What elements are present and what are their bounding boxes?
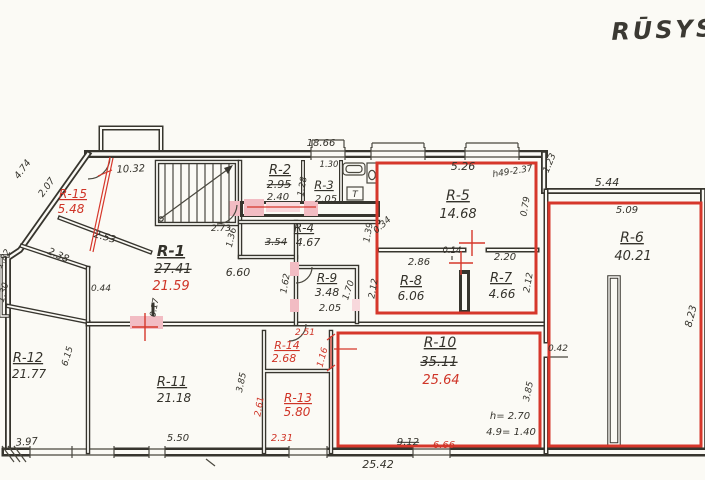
drawing-title: RŪSYS	[611, 12, 705, 46]
dim-2-53: 2.53	[92, 229, 116, 246]
room-r3-area: 2.05	[315, 194, 337, 205]
northeast-step-wall	[544, 154, 703, 191]
room-r2-area-old: 2.95	[267, 178, 292, 191]
dim-top-18-66: 18.66	[307, 138, 336, 149]
note-h-2-70: h= 2.70	[490, 411, 530, 422]
room-r5-name: R-5	[446, 188, 470, 204]
room-r5-area: 14.68	[439, 207, 476, 222]
floor-plan-page: RŪSYS 18.6610.324.742.072.532.381.821.30…	[0, 0, 705, 480]
dim-0-44: 0.44	[91, 284, 111, 294]
room-r4-name: R-4	[294, 221, 314, 235]
stair-direction-line	[160, 167, 231, 219]
dim-6-60: 6.60	[226, 266, 251, 279]
dim-tick	[206, 459, 215, 466]
room-r1-area-new: 21.59	[152, 279, 189, 294]
dim-2-31: 2.31	[271, 433, 293, 444]
dim-8-23: 8.23	[684, 304, 700, 328]
room-r10-name: R-10	[424, 335, 457, 351]
red-dim-marks-r14	[327, 334, 357, 371]
dim-3-85-r11: 3.85	[235, 371, 249, 393]
room-r13-area: 5.80	[284, 405, 311, 419]
dim-2-51: 2.51	[295, 328, 315, 338]
room-r6-name: R-6	[620, 230, 644, 246]
dim-5-09: 5.09	[616, 205, 638, 216]
dim-1-16: 1.16	[316, 346, 331, 368]
room-r10-area-new: 25.64	[422, 373, 459, 388]
room-r6-area: 40.21	[614, 249, 651, 264]
room-r7-area: 4.66	[489, 287, 516, 301]
room-r11-name: R-11	[157, 375, 187, 390]
room-r10-area-old: 35.11	[420, 355, 457, 370]
floor-plan-drawing: RŪSYS 18.6610.324.742.072.532.381.821.30…	[0, 0, 705, 480]
dim-10-32: 10.32	[116, 163, 145, 175]
bathroom-fixtures	[343, 163, 377, 200]
dim-5-44: 5.44	[595, 176, 620, 189]
labels-layer: 18.6610.324.742.072.532.381.821.302.736.…	[0, 138, 700, 471]
room-r14-area: 2.68	[272, 352, 297, 365]
dim-3-97: 3.97	[15, 436, 39, 449]
fixture-t-glyph: T	[352, 190, 359, 200]
dim-0-79: 0.79	[519, 196, 532, 218]
dim-3-54: 3.54	[265, 237, 287, 248]
dim-3-85-r6: 3.85	[522, 380, 536, 402]
room-r11-area: 21.18	[157, 391, 192, 405]
room-r8-name: R-8	[400, 274, 422, 289]
north-windows	[311, 140, 519, 160]
dim-9-12: 9.12	[397, 437, 419, 448]
room-r2-name: R-2	[269, 163, 291, 178]
top-left-bay	[101, 128, 161, 152]
room-r15-area: 5.48	[58, 202, 85, 216]
room-r1-area-old: 27.41	[154, 262, 191, 277]
staircase	[159, 164, 233, 222]
dim-1-62: 1.62	[279, 273, 292, 295]
dim-2-12-left: 2.12	[367, 278, 380, 300]
dim-2-20: 2.20	[494, 252, 516, 263]
room-r9-dim: 2.05	[319, 303, 341, 314]
room-r9-name: R-9	[317, 271, 337, 285]
room-r2-area-new: 2.40	[267, 192, 289, 203]
room-r4-area: 4.67	[296, 236, 321, 249]
dim-4-74: 4.74	[12, 158, 33, 182]
room-r3-name: R-3	[314, 178, 333, 192]
room-r14-name: R-14	[274, 339, 300, 352]
dim-1-39: 1.39	[362, 222, 375, 244]
dim-2-12-right: 2.12	[522, 272, 535, 294]
chimney	[609, 277, 619, 444]
dim-1-28: 1.28	[296, 176, 309, 198]
dim-2-07: 2.07	[36, 176, 57, 200]
room-r13-name: R-13	[284, 391, 312, 405]
note-4-9-1-40: 4.9= 1.40	[486, 427, 536, 438]
dim-2-38: 2.38	[46, 246, 71, 265]
room-r12-area: 21.77	[12, 367, 47, 381]
dim-0-34: 0.34	[372, 215, 394, 236]
room-r9-area: 3.48	[315, 286, 340, 299]
dim-1-30-r3: 1.30	[320, 160, 339, 170]
dim-0-17: 0.17	[148, 297, 161, 318]
dim-25-42: 25.42	[362, 458, 394, 471]
room-r1-name: R-1	[157, 242, 185, 260]
dim-5-26: 5.26	[451, 160, 476, 173]
dim-6-66: 6.66	[433, 440, 455, 451]
room-r15-name: R-15	[59, 187, 87, 201]
dim-1-70: 1.70	[341, 279, 357, 301]
room-r7-name: R-7	[490, 271, 513, 286]
note-height-r5: h49-2.37	[492, 164, 534, 180]
room-r12-name: R-12	[13, 351, 43, 366]
dim-2-86: 2.86	[408, 257, 430, 268]
dim-6-15: 6.15	[60, 345, 76, 367]
dim-0-42: 0.42	[548, 344, 568, 354]
dim-0-14: 0.14	[443, 246, 462, 256]
dim-5-50: 5.50	[167, 433, 189, 444]
room-r8-area: 6.06	[398, 289, 425, 303]
